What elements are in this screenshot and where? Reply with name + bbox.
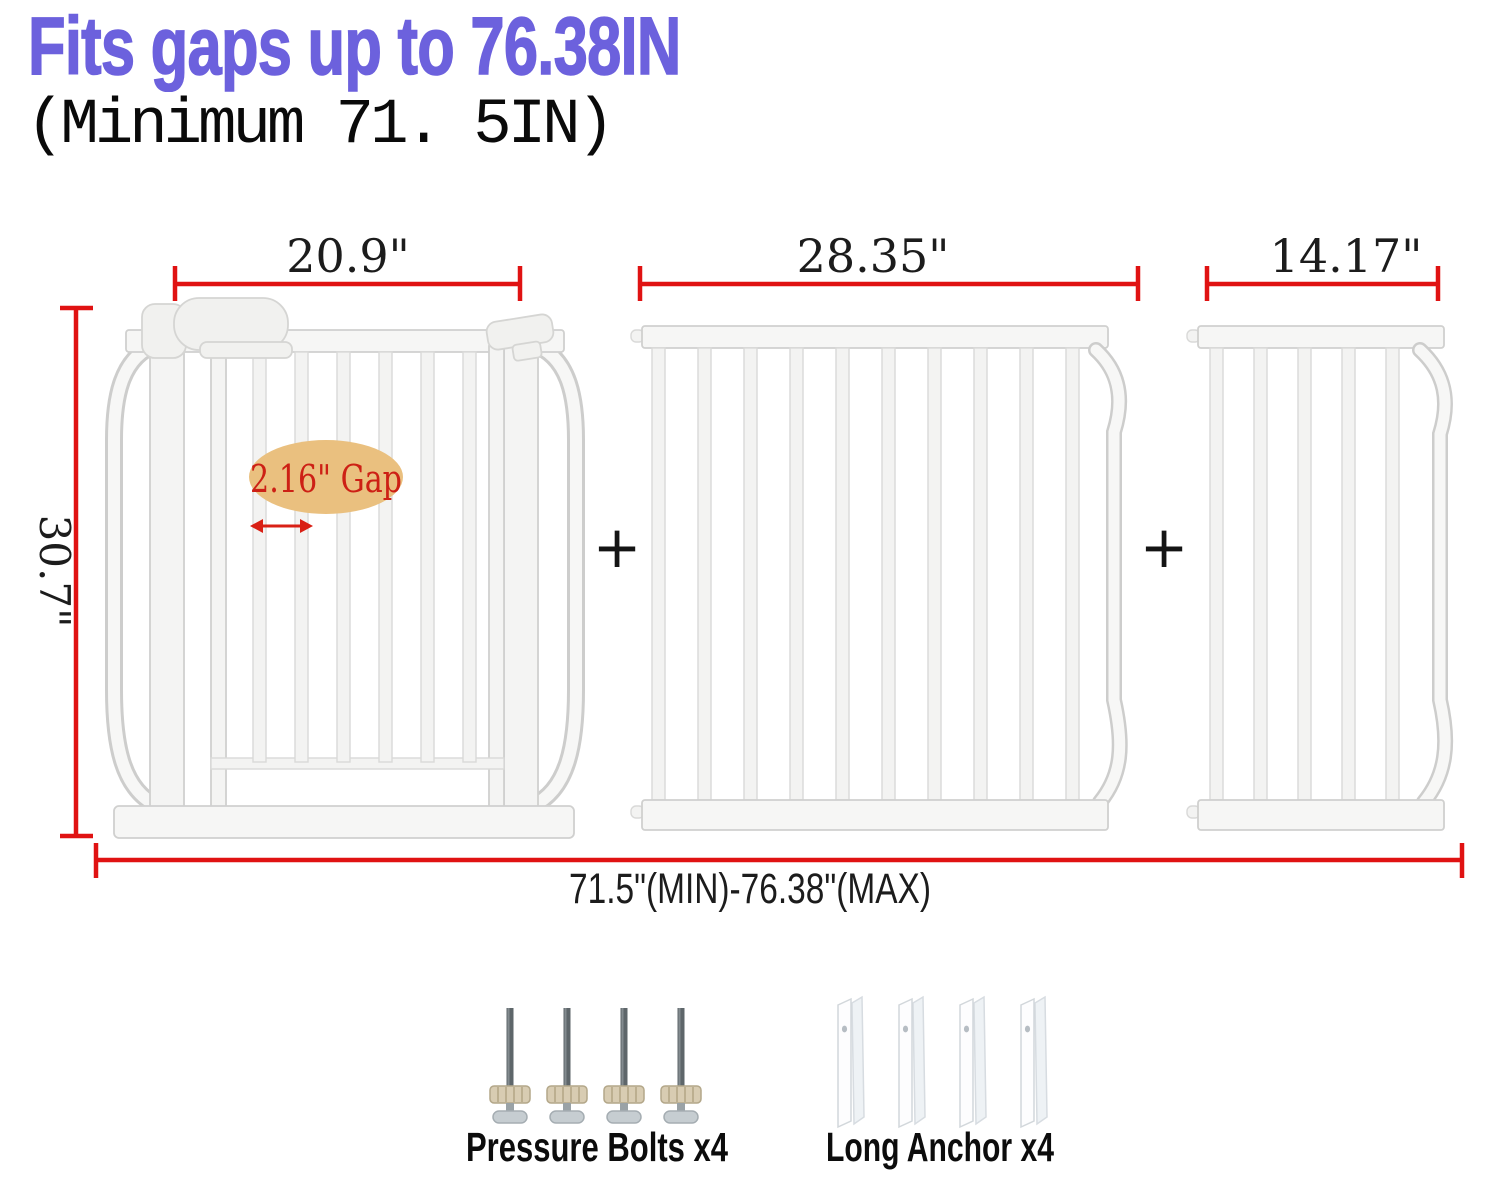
extension-panel-28in [631,326,1120,830]
right-width-label: 14.17" [1270,229,1423,283]
gate-bar [463,352,476,762]
pressure-bolt-icon [604,1008,644,1123]
middle-width-label: 28.35" [797,229,950,283]
dimension-height: 30.7" [30,308,93,836]
gate-bar [1342,348,1355,800]
dimension-left-width: 20.9" [175,229,520,301]
long-anchor-icon [1021,997,1047,1127]
pressure-bolts-label: Pressure Bolts x4 [466,1124,728,1170]
gate-dimension-diagram-page: Fits gaps up to 76.38IN (Minimum 71. 5IN… [0,0,1500,1184]
gate-bar [836,348,849,800]
gate-bottom-rail [114,806,574,838]
left-width-label: 20.9" [286,229,410,283]
pressure-bolts-group: Pressure Bolts x4 [466,1008,728,1170]
long-anchor-icon [899,997,925,1127]
gate-bar [790,348,803,800]
panel-top-rail [1198,326,1444,348]
panel-bottom-rail [642,800,1108,830]
pressure-bolt-icon [547,1008,587,1123]
gate-handle-lip [200,342,292,358]
gate-bar [1386,348,1399,800]
gate-bar [421,352,434,762]
panel-bottom-rail [1198,800,1444,830]
gate-bar [974,348,987,800]
gate-bar [1066,348,1079,800]
gate-bar [1020,348,1033,800]
gate-bar [337,352,350,762]
gate-bar [1298,348,1311,800]
gate-latch-catch [512,341,542,361]
door-left-frame-bar [211,346,226,808]
height-label: 30.7" [30,515,79,628]
panel-top-rail [642,326,1108,348]
walk-through-gate-panel: 2.16" Gap [114,298,576,838]
plus-sign: + [593,513,642,581]
gate-bar [928,348,941,800]
total-range-label: 71.5"(MIN)-76.38"(MAX) [569,865,931,913]
dimension-middle-width: 28.35" [640,229,1138,301]
dimension-right-width: 14.17" [1207,229,1438,301]
gate-bar [882,348,895,800]
long-anchor-label: Long Anchor x4 [826,1124,1054,1170]
gate-left-post [150,330,184,810]
long-anchors-group: Long Anchor x4 [826,997,1054,1170]
dimension-total-range: 71.5"(MIN)-76.38"(MAX) [96,843,1462,913]
long-anchor-icon [960,997,986,1127]
gate-bar [698,348,711,800]
extension-panel-14in [1187,326,1445,830]
gate-bar [253,352,266,762]
gate-bar [1254,348,1267,800]
pressure-bolt-icon [661,1008,701,1123]
gate-bar [295,352,308,762]
plus-sign: + [1140,513,1189,581]
long-anchor-icon [838,997,864,1127]
pressure-bolt-icon [490,1008,530,1123]
gate-right-post [504,330,538,810]
door-right-frame-bar [489,346,504,808]
gap-label: 2.16" Gap [250,457,402,501]
gate-bar [379,352,392,762]
gate-diagram: 2.16" Gap [0,0,1500,1184]
gate-bar [744,348,757,800]
gate-bar [1210,348,1223,800]
gap-arrow [250,519,313,533]
gate-bar [652,348,665,800]
